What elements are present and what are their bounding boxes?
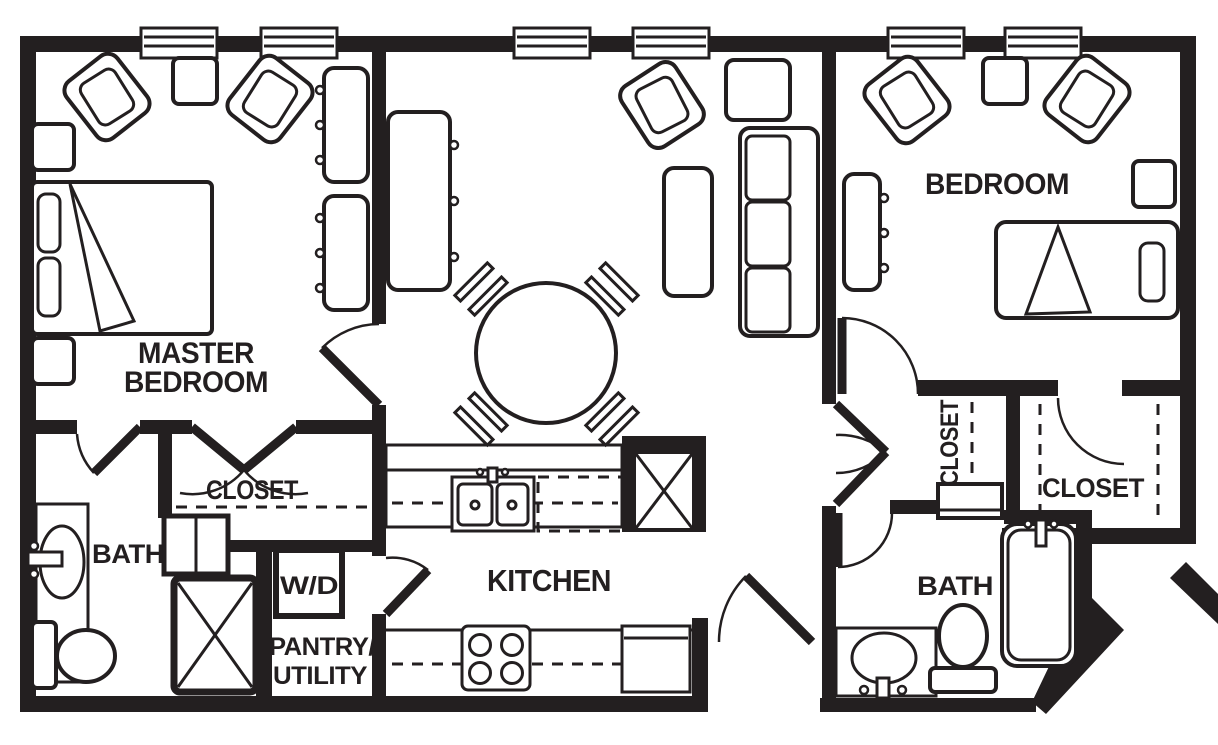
pantry-door [386,558,428,614]
queen-bed [32,182,212,334]
armchair [616,57,709,152]
toilet [930,605,996,692]
faucet [1036,520,1046,546]
label-pantry: PANTRY/ [269,633,376,661]
window [261,28,337,58]
bath2-door [838,513,892,567]
label-bedroom-closet: CLOSET [1042,473,1145,503]
wall-bedroom-west-upper [822,52,836,404]
dresser [844,174,888,290]
wall-adjacent-unit [1170,562,1218,624]
label-pantry: UTILITY [273,662,368,690]
nightstand [32,338,74,384]
wall-master-south-a [20,420,77,434]
wall-bath1-east [158,434,172,518]
label-master-bedroom: BEDROOM [124,366,268,399]
shower-stall [174,578,256,692]
double-sink [452,468,534,531]
master-bath-door [77,427,140,473]
label-master-closet: CLOSET [206,475,299,505]
entry-door [719,576,812,642]
wall-master-south-b [140,420,192,434]
linen-cabinet [164,516,228,574]
oven [622,626,690,692]
sofa [740,128,818,336]
media-console [388,112,458,290]
hall-shelf [938,484,1002,518]
armchair [223,51,318,147]
dining-table [476,283,616,423]
faucet [28,552,62,566]
pillow [1140,243,1164,301]
nightstand [1133,161,1175,207]
wall-master-south-c [296,420,372,434]
side-table [983,58,1027,104]
label-master-bath: BATH [92,539,164,569]
master-bedroom-furniture [32,49,368,384]
bathtub [1002,520,1076,666]
bedroom-closet-door [1058,398,1124,464]
wall-tub-north [1004,510,1092,524]
faucet [877,678,889,698]
twin-bed [996,222,1178,318]
wall-bedroom-south-b [1122,380,1180,396]
wall-bath2-bottom [820,698,1036,712]
master-bedroom-door [322,324,379,405]
living-room-furniture [388,57,818,445]
dresser [316,196,368,310]
window [888,28,964,58]
wall-right [1180,36,1196,544]
pillow [38,194,60,252]
wall-master-east-lower [372,614,386,712]
armchair [860,52,955,148]
floor-plan-page: MASTER BEDROOM CLOSET BATH W/D PANTRY/ U… [0,0,1218,745]
side-table [173,58,217,104]
bedroom-door [842,318,918,394]
window [1005,28,1081,58]
label-kitchen: KITCHEN [487,563,611,598]
pillow [38,258,60,316]
toilet [32,622,115,688]
dresser [316,68,368,182]
label-hall-closet: CLOSET [936,400,964,486]
label-bath2: BATH [917,571,993,601]
label-bedroom: BEDROOM [925,168,1069,201]
window [633,28,709,58]
window [514,28,590,58]
label-washer-dryer: W/D [280,572,338,600]
side-table [726,60,790,120]
armchair [1040,51,1135,147]
wall-bedroom-south-a [918,380,1058,396]
wall-master-east-mid [372,405,386,556]
faucet [488,468,497,482]
vanity-sink [852,633,916,683]
hall-double-doors [836,404,886,504]
wall-kitchen-stub [692,618,708,712]
wall-hallcloset-east [1006,396,1020,512]
refrigerator [634,452,694,530]
wall-bottom-left [20,696,708,712]
master-bath-fixtures [28,504,256,692]
wall-bath2-north [890,500,940,514]
floor-plan: MASTER BEDROOM CLOSET BATH W/D PANTRY/ U… [0,0,1218,745]
window [141,28,217,58]
range-stove [462,626,530,690]
side-table [32,124,74,170]
coffee-table [664,168,712,296]
wall-master-east-upper [372,52,386,324]
wall-fridge-top [622,436,706,450]
